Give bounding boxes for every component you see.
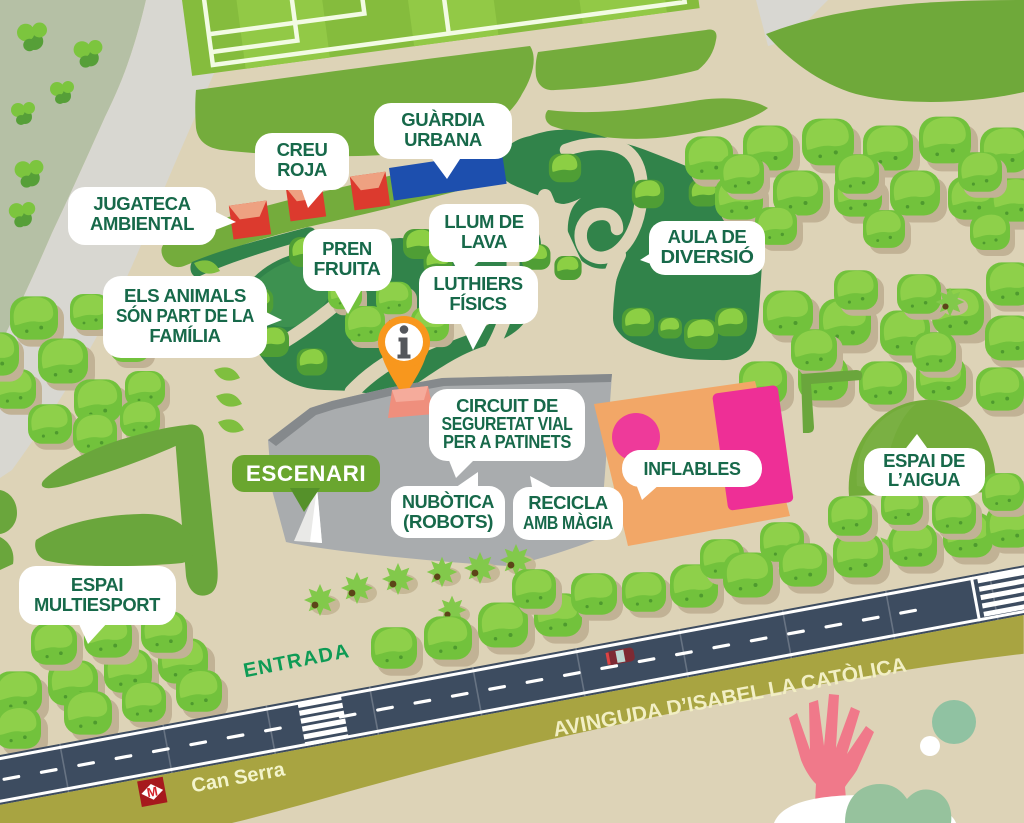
svg-text:AMB MÀGIA: AMB MÀGIA: [523, 512, 613, 533]
svg-text:AULA DE: AULA DE: [668, 226, 747, 247]
svg-text:GUÀRDIA: GUÀRDIA: [401, 109, 485, 130]
svg-text:FAMÍLIA: FAMÍLIA: [149, 325, 220, 346]
svg-text:MULTIESPORT: MULTIESPORT: [34, 594, 161, 615]
svg-text:CREU: CREU: [277, 139, 328, 160]
svg-text:URBANA: URBANA: [404, 129, 482, 150]
svg-text:L’AIGUA: L’AIGUA: [888, 469, 960, 490]
svg-text:ESPAI: ESPAI: [71, 574, 123, 595]
svg-text:AMBIENTAL: AMBIENTAL: [90, 213, 194, 234]
svg-text:NUBÒTICA: NUBÒTICA: [402, 491, 494, 512]
svg-text:(ROBOTS): (ROBOTS): [403, 511, 493, 532]
svg-text:ELS ANIMALS: ELS ANIMALS: [124, 285, 246, 306]
svg-text:LLUM DE: LLUM DE: [444, 211, 523, 232]
svg-text:LUTHIERS: LUTHIERS: [433, 273, 522, 294]
svg-text:PER A PATINETS: PER A PATINETS: [443, 431, 571, 452]
svg-text:SÓN PART DE LA: SÓN PART DE LA: [116, 305, 254, 326]
svg-text:FÍSICS: FÍSICS: [449, 293, 506, 314]
svg-text:FRUITA: FRUITA: [314, 258, 381, 279]
svg-text:JUGATECA: JUGATECA: [93, 193, 190, 214]
svg-text:ROJA: ROJA: [277, 159, 327, 180]
svg-text:ESPAI DE: ESPAI DE: [883, 450, 965, 471]
svg-text:LAVA: LAVA: [461, 231, 507, 252]
svg-text:RECICLA: RECICLA: [528, 492, 607, 513]
svg-text:PREN: PREN: [322, 238, 372, 259]
svg-text:DIVERSIÓ: DIVERSIÓ: [661, 246, 754, 267]
svg-text:ESCENARI: ESCENARI: [246, 461, 366, 486]
svg-text:INFLABLES: INFLABLES: [644, 458, 741, 479]
